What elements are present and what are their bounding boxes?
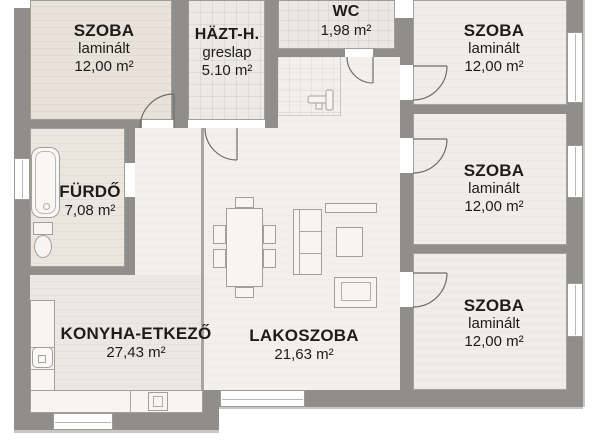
plan-edge-right	[583, 0, 585, 407]
room-area: 1,98 m²	[300, 22, 392, 39]
door-opening-szoba-tr	[400, 65, 413, 100]
window-furdo-left	[14, 158, 30, 200]
wall-hazt-right	[265, 0, 278, 128]
dining-chair	[235, 197, 254, 208]
cooktop-icon	[148, 392, 168, 411]
room-area: 21,63 m²	[212, 346, 396, 363]
sofa-back-line	[299, 210, 300, 274]
wall-furdo-bottom	[14, 267, 135, 275]
door-opening-szoba-mr	[400, 138, 413, 173]
room-name: FÜRDŐ	[38, 182, 142, 201]
plan-edge-bottom-left	[14, 430, 219, 433]
window-szoba-tr-right	[567, 32, 583, 103]
sofa-cushion-line	[299, 231, 321, 232]
room-name: HÄZT-H.	[188, 25, 266, 44]
room-material: laminált	[34, 40, 174, 57]
coffee-table	[336, 227, 363, 257]
sideboard	[325, 203, 377, 213]
room-name: KONYHA-ETKEZŐ	[40, 324, 232, 343]
toilet-cistern	[33, 222, 53, 235]
dining-table	[226, 208, 263, 287]
sofa	[293, 209, 322, 275]
door-opening-szoba-tl	[142, 120, 174, 128]
room-area: 12,00 m²	[424, 198, 564, 215]
room-label-szoba-middle-right: SZOBA laminált 12,00 m²	[424, 161, 564, 215]
dining-chair	[263, 249, 276, 268]
window-kitchen-bottom	[53, 413, 113, 430]
window-living-bottom	[220, 390, 305, 407]
door-opening-szoba-br	[400, 272, 413, 307]
room-label-szoba-bottom-right: SZOBA laminált 12,00 m²	[424, 296, 564, 350]
room-name: LAKOSZOBA	[212, 326, 396, 345]
kitchen-counter-bottom	[30, 390, 203, 413]
dining-chair	[235, 287, 254, 298]
room-area: 5.10 m²	[188, 62, 266, 79]
room-name: SZOBA	[424, 161, 564, 180]
room-label-wc: WC 1,98 m²	[300, 2, 392, 39]
dining-chair	[213, 225, 226, 244]
plan-edge-bottom	[219, 407, 583, 409]
counter-divider-3	[130, 390, 131, 413]
room-label-haztartasi: HÄZT-H. greslap 5.10 m²	[188, 25, 266, 79]
room-name: SZOBA	[34, 21, 174, 40]
dining-chair	[263, 225, 276, 244]
room-area: 7,08 m²	[38, 202, 142, 219]
room-material: laminált	[424, 40, 564, 57]
room-material: laminált	[424, 315, 564, 332]
wall-wc-right	[395, 18, 413, 56]
wall-bottom-kitchen	[14, 413, 219, 430]
room-label-szoba-top-left: SZOBA laminált 12,00 m²	[34, 21, 174, 75]
wall-left	[14, 8, 30, 430]
room-area: 12,00 m²	[424, 333, 564, 350]
window-szoba-br-right	[567, 283, 583, 337]
door-opening-wc	[345, 49, 373, 57]
window-szoba-mr-right	[567, 145, 583, 198]
door-opening-hazt	[205, 120, 237, 128]
hall-strip-floor	[135, 128, 202, 275]
wall-tr-mr-divider	[400, 105, 583, 114]
room-area: 27,43 m²	[40, 344, 232, 361]
room-label-lakoszoba: LAKOSZOBA 21,63 m²	[212, 326, 396, 363]
floor-plan: SZOBA laminált 12,00 m² HÄZT-H. greslap …	[0, 0, 612, 443]
room-name: SZOBA	[424, 21, 564, 40]
wall-mr-br-divider	[400, 245, 583, 253]
room-label-furdo: FÜRDŐ 7,08 m²	[38, 182, 142, 219]
room-area: 12,00 m²	[424, 58, 564, 75]
dining-chair	[213, 249, 226, 268]
toilet-icon	[34, 235, 52, 258]
wall-szoba-tl-right	[172, 0, 188, 128]
entry-tile-patch	[278, 57, 341, 116]
counter-divider-2	[30, 369, 55, 370]
room-label-konyha-etkezo: KONYHA-ETKEZŐ 27,43 m²	[40, 324, 232, 361]
armchair	[334, 277, 377, 308]
room-name: SZOBA	[424, 296, 564, 315]
room-material: greslap	[188, 44, 266, 61]
room-material: laminált	[424, 180, 564, 197]
room-name: WC	[300, 2, 392, 21]
room-area: 12,00 m²	[34, 58, 174, 75]
sofa-cushion-line	[299, 253, 321, 254]
room-label-szoba-top-right: SZOBA laminált 12,00 m²	[424, 21, 564, 75]
